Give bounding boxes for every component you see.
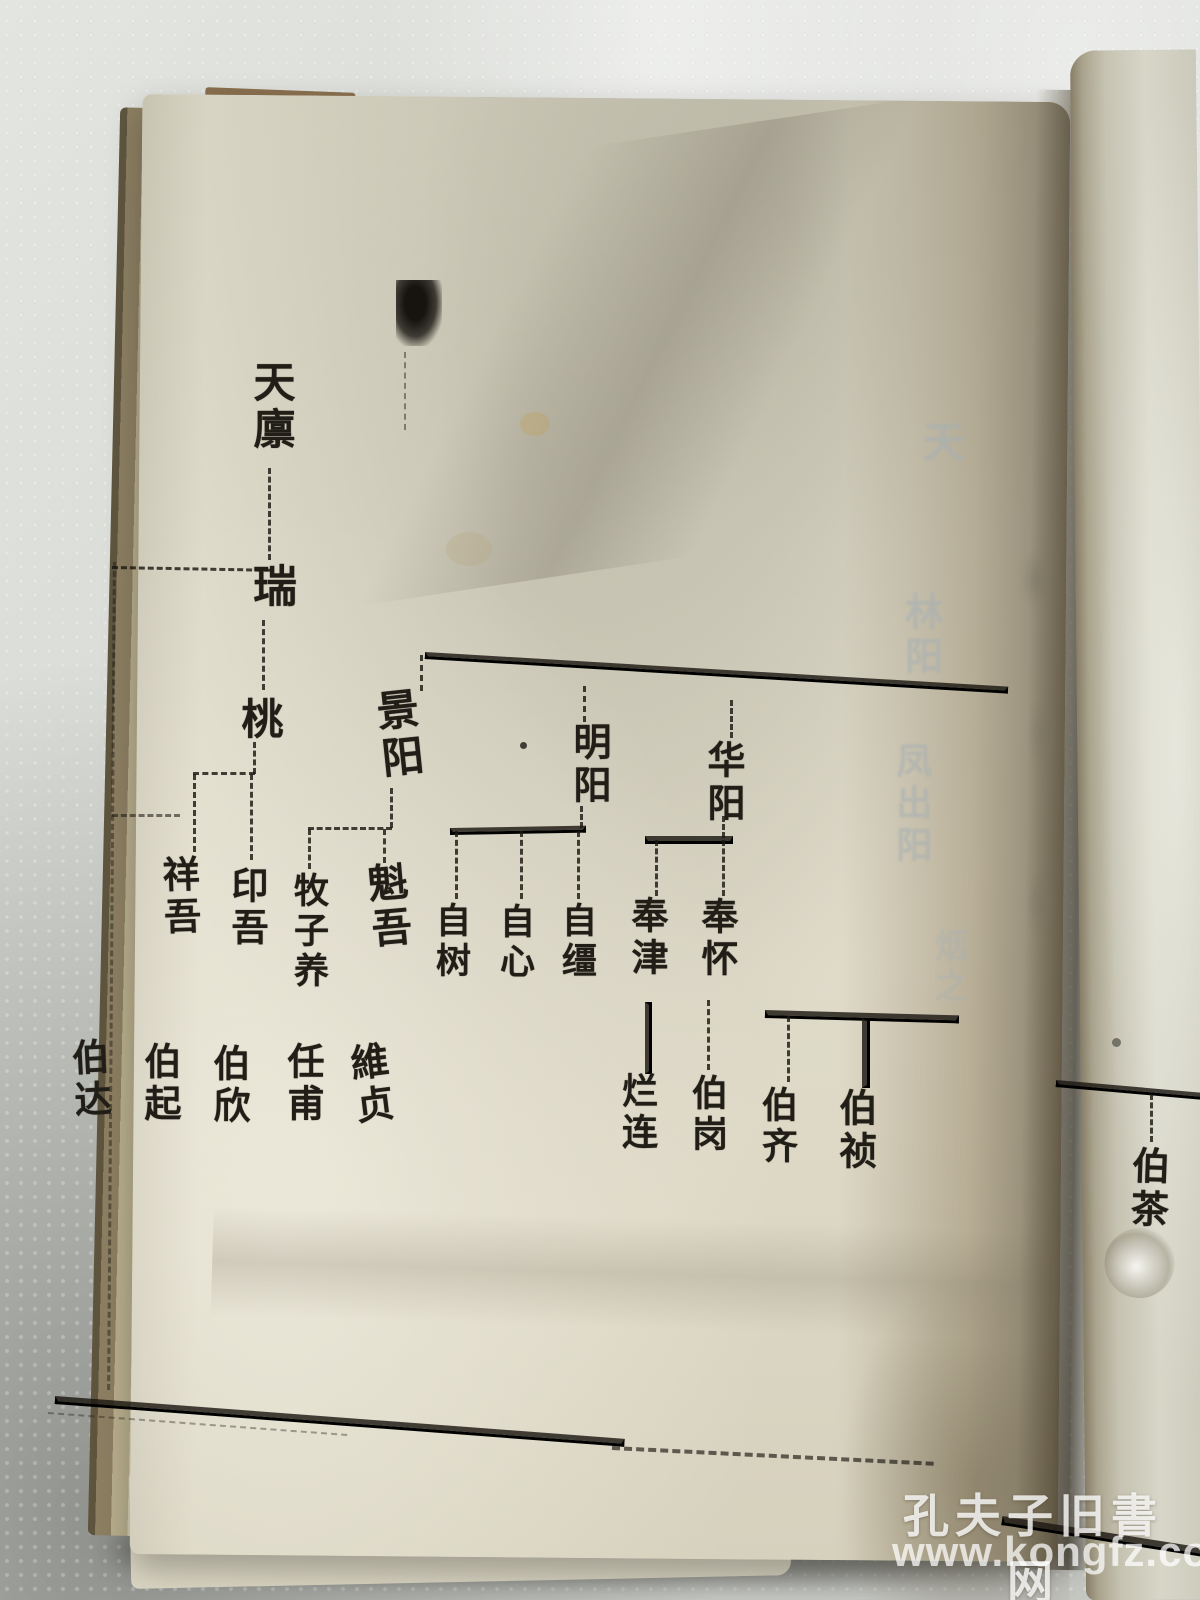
bleedthrough-text: 林阳	[898, 592, 942, 680]
connector-line	[268, 468, 271, 560]
bleedthrough-smudge	[1020, 550, 1054, 610]
tree-node-fengjin: 奉津	[628, 896, 665, 980]
tree-node-zijiang: 自缰	[558, 902, 593, 982]
connector-line	[655, 840, 658, 896]
tree-node-boqi: 伯起	[141, 1042, 178, 1126]
chart-bottom-border	[55, 1396, 625, 1447]
connector-line	[193, 774, 196, 852]
connector-line	[455, 831, 458, 899]
connector-line	[787, 1016, 790, 1082]
connector-line	[193, 772, 255, 775]
connector-line	[250, 774, 253, 860]
tree-node-xiangwu: 祥吾	[159, 854, 199, 939]
kongfz-watermark-url: www.kongfz.com	[892, 1528, 1172, 1576]
tree-node-muziyang: 牧子养	[290, 872, 325, 992]
right-page-branch-line	[1056, 1080, 1200, 1100]
connector-line	[722, 840, 725, 896]
connector-line	[308, 827, 392, 830]
tree-node-kuiwu: 魁吾	[362, 860, 410, 953]
tree-node-fenghuai: 奉怀	[698, 897, 735, 981]
connector-line	[262, 620, 265, 690]
tree-node-lanlian: 烂连	[618, 1072, 654, 1154]
tree-node-rui: 瑞	[248, 563, 292, 612]
connector-line	[1150, 1094, 1153, 1142]
tree-node-jingyang: 景阳	[371, 686, 423, 784]
connector-line	[420, 655, 423, 691]
bleedthrough-text: 天	[916, 420, 964, 468]
ink-speck	[1112, 1038, 1121, 1047]
connector-line	[707, 1000, 710, 1070]
genealogy-chart: 天 林阳 凤出阳 烟之	[0, 0, 1200, 1600]
ink-trail	[404, 352, 406, 430]
tree-node-bogang: 伯岗	[688, 1074, 724, 1156]
bleedthrough-smudge	[1028, 700, 1058, 770]
connector-line	[645, 1002, 652, 1074]
tree-node-weizhen: 維贞	[345, 1040, 393, 1130]
tree-node-bocha: 伯茶	[1127, 1145, 1168, 1232]
tree-node-boda: 伯达	[68, 1037, 109, 1123]
book-photo: 天 林阳 凤出阳 烟之	[0, 0, 1200, 1600]
tree-node-bozhen: 伯祯	[836, 1088, 874, 1174]
tree-node-boxin: 伯欣	[210, 1044, 247, 1128]
connector-line	[450, 826, 586, 835]
connector-line	[645, 836, 733, 844]
ink-speck	[520, 742, 527, 749]
tree-node-huayang: 华阳	[704, 740, 742, 826]
connector-line	[112, 814, 180, 817]
tree-node-yinwu: 印吾	[228, 866, 265, 950]
bleedthrough-smudge	[1026, 870, 1056, 934]
connector-line	[730, 700, 733, 738]
connector-line	[862, 1018, 870, 1088]
connector-line	[253, 742, 256, 774]
bleedthrough-text: 凤出阳	[890, 742, 931, 868]
connector-line	[520, 831, 523, 899]
tree-node-tao: 桃	[238, 697, 280, 744]
tree-node-zixin: 自心	[496, 903, 531, 983]
connector-line	[577, 831, 580, 899]
tree-node-tianlin: 天廪	[250, 360, 292, 454]
paper-stain	[446, 532, 492, 566]
chart-bottom-border	[612, 1446, 934, 1466]
ink-blotch	[396, 280, 442, 346]
chart-left-border	[107, 562, 116, 1390]
connector-line	[583, 686, 586, 722]
tree-node-renfu: 任甫	[284, 1042, 321, 1126]
tree-node-mingyang: 明阳	[570, 722, 608, 808]
tree-node-boqi2: 伯齐	[758, 1086, 794, 1168]
tree-node-zishu: 自树	[432, 902, 467, 982]
bleedthrough-text: 烟之	[928, 928, 967, 1008]
paper-stain	[520, 412, 550, 436]
connector-line	[308, 829, 311, 869]
connector-line	[390, 788, 393, 828]
connector-line	[383, 829, 386, 863]
